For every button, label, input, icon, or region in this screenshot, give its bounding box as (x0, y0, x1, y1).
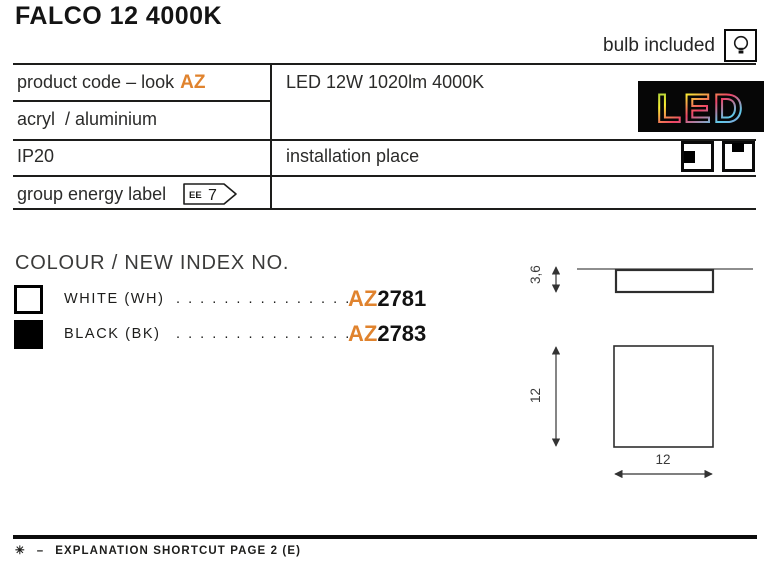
led-logo-text: LED (657, 87, 746, 131)
energy-class-badge: EE 7 (182, 182, 238, 206)
index-code-white: AZ2781 (348, 286, 426, 312)
installation-place-icons (681, 141, 755, 172)
table-border-top (13, 63, 756, 65)
black-swatch (14, 320, 43, 349)
leader-dots: . . . . . . . . . . . . . . . . (176, 291, 348, 307)
index-code-black: AZ2783 (348, 321, 426, 347)
index-code-prefix: AZ (348, 286, 377, 311)
front-view-rect (614, 346, 713, 447)
ceiling-mount-icon (722, 141, 755, 172)
table-column-divider (270, 63, 272, 210)
bulb-included-badge: bulb included (603, 29, 757, 62)
index-code-prefix: AZ (348, 321, 377, 346)
lamp-spec-cell: LED 12W 1020lm 4000K (286, 72, 484, 93)
ceiling-mount-marker (732, 143, 744, 152)
white-swatch (14, 285, 43, 314)
profile-height-value: 3,6 (528, 265, 543, 284)
led-logo-glyph: LED (641, 83, 761, 131)
footer-dash: – (37, 545, 45, 557)
energy-badge-prefix: EE (189, 190, 202, 201)
profile-view-rect (616, 270, 713, 292)
index-code-number: 2781 (377, 286, 426, 311)
bulb-included-label: bulb included (603, 35, 715, 57)
colour-name-white: WHITE (WH) (64, 291, 176, 307)
colour-row-black: BLACK (BK) . . . . . . . . . . . . . . .… (14, 320, 426, 348)
installation-place-cell: installation place (286, 146, 419, 167)
colour-row-white: WHITE (WH) . . . . . . . . . . . . . . .… (14, 285, 426, 313)
ip-rating-cell: IP20 (17, 146, 54, 167)
table-border-bottom (13, 208, 756, 210)
product-code-label: product code – look (17, 72, 174, 92)
footer-note: ✳ – EXPLANATION SHORTCUT PAGE 2 (E) (15, 543, 301, 557)
index-code-number: 2783 (377, 321, 426, 346)
bulb-icon (724, 29, 757, 62)
table-row-divider-2 (13, 139, 756, 141)
colour-section-heading: COLOUR / NEW INDEX NO. (15, 252, 289, 275)
front-width-value: 12 (655, 452, 670, 467)
front-height-value: 12 (528, 388, 543, 403)
energy-label-text: group energy label (17, 184, 166, 205)
dimension-drawing: 3,6 12 12 (520, 250, 765, 485)
leader-dots: . . . . . . . . . . . . . . . . (176, 326, 348, 342)
spec-table: product code – lookAZ LED 12W 1020lm 400… (13, 63, 756, 210)
wall-mount-icon (681, 141, 714, 172)
table-row-divider-1 (13, 100, 271, 102)
page-title: FALCO 12 4000K (15, 2, 222, 31)
wall-mount-marker (684, 151, 695, 163)
table-row-divider-3 (13, 175, 756, 177)
energy-label-cell: group energy label EE 7 (17, 182, 238, 206)
led-logo: LED (638, 81, 764, 132)
energy-badge-value: 7 (208, 187, 217, 204)
colour-name-black: BLACK (BK) (64, 326, 176, 342)
material-cell: acryl / aluminium (17, 109, 157, 130)
brand-prefix: AZ (180, 72, 205, 93)
footer-label: EXPLANATION SHORTCUT PAGE 2 (E) (55, 545, 301, 557)
asterisk-icon: ✳ (15, 543, 26, 557)
footer-rule (13, 535, 757, 539)
bulb-icon-glyph (730, 34, 752, 58)
product-code-cell: product code – lookAZ (17, 72, 205, 94)
